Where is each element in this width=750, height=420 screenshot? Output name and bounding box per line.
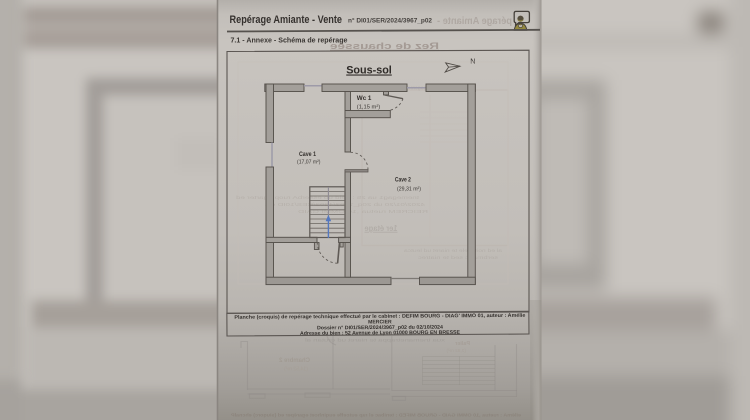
svg-text:n° DI01/SER/2024/3967_p02: n° DI01/SER/2024/3967_p02 xyxy=(348,18,433,24)
svg-text:Sous-sol: Sous-sol xyxy=(346,65,392,77)
svg-text:Wc 1: Wc 1 xyxy=(357,95,372,102)
svg-text:pérage Amiante -: pérage Amiante - xyxy=(437,16,512,27)
svg-text:al ed noitavele te niaret ud l: al ed noitavele te niaret ud leutca xyxy=(403,248,502,253)
svg-text:(29,31 m²): (29,31 m²) xyxy=(397,187,421,193)
svg-text:7.1 - Annexe - Schéma de repér: 7.1 - Annexe - Schéma de repérage xyxy=(231,35,348,44)
svg-text:4202/01/20 ub 20q_7693/4202/RE: 4202/01/20 ub 20q_7693/4202/RES/10ID eis xyxy=(264,202,425,207)
svg-text:(14,52 m²): (14,52 m²) xyxy=(284,366,308,372)
svg-text:eilémA : ruetua ,10 OMMI GAID: eilémA : ruetua ,10 OMMI GAID - GRUOB MI… xyxy=(230,413,521,419)
svg-text:N: N xyxy=(470,57,475,66)
svg-text:serbmahc sed te niatrec: serbmahc sed te niatrec xyxy=(417,255,498,260)
svg-text:Rez de chaussée: Rez de chaussée xyxy=(330,41,439,51)
svg-text:Chambre 2: Chambre 2 xyxy=(278,358,310,364)
svg-text:Cave 2: Cave 2 xyxy=(395,176,411,183)
svg-text:(17,07 m²): (17,07 m²) xyxy=(297,160,321,166)
svg-text:1er étage: 1er étage xyxy=(364,223,397,233)
svg-text:(2,92 m²): (2,92 m²) xyxy=(446,348,466,354)
svg-text:Palier: Palier xyxy=(454,341,470,347)
svg-text:xua tnemanetrappa te niaret ud: xua tnemanetrappa te niaret ud erutan al xyxy=(305,338,445,343)
svg-text:Cave 1: Cave 1 xyxy=(299,151,316,158)
svg-text:Repérage Amiante - Vente: Repérage Amiante - Vente xyxy=(230,14,343,26)
svg-text:Adresse du bien : 52 Avenue de: Adresse du bien : 52 Avenue de Lyon 0100… xyxy=(300,330,461,337)
svg-text:(1,15 m²): (1,15 m²) xyxy=(357,105,381,111)
